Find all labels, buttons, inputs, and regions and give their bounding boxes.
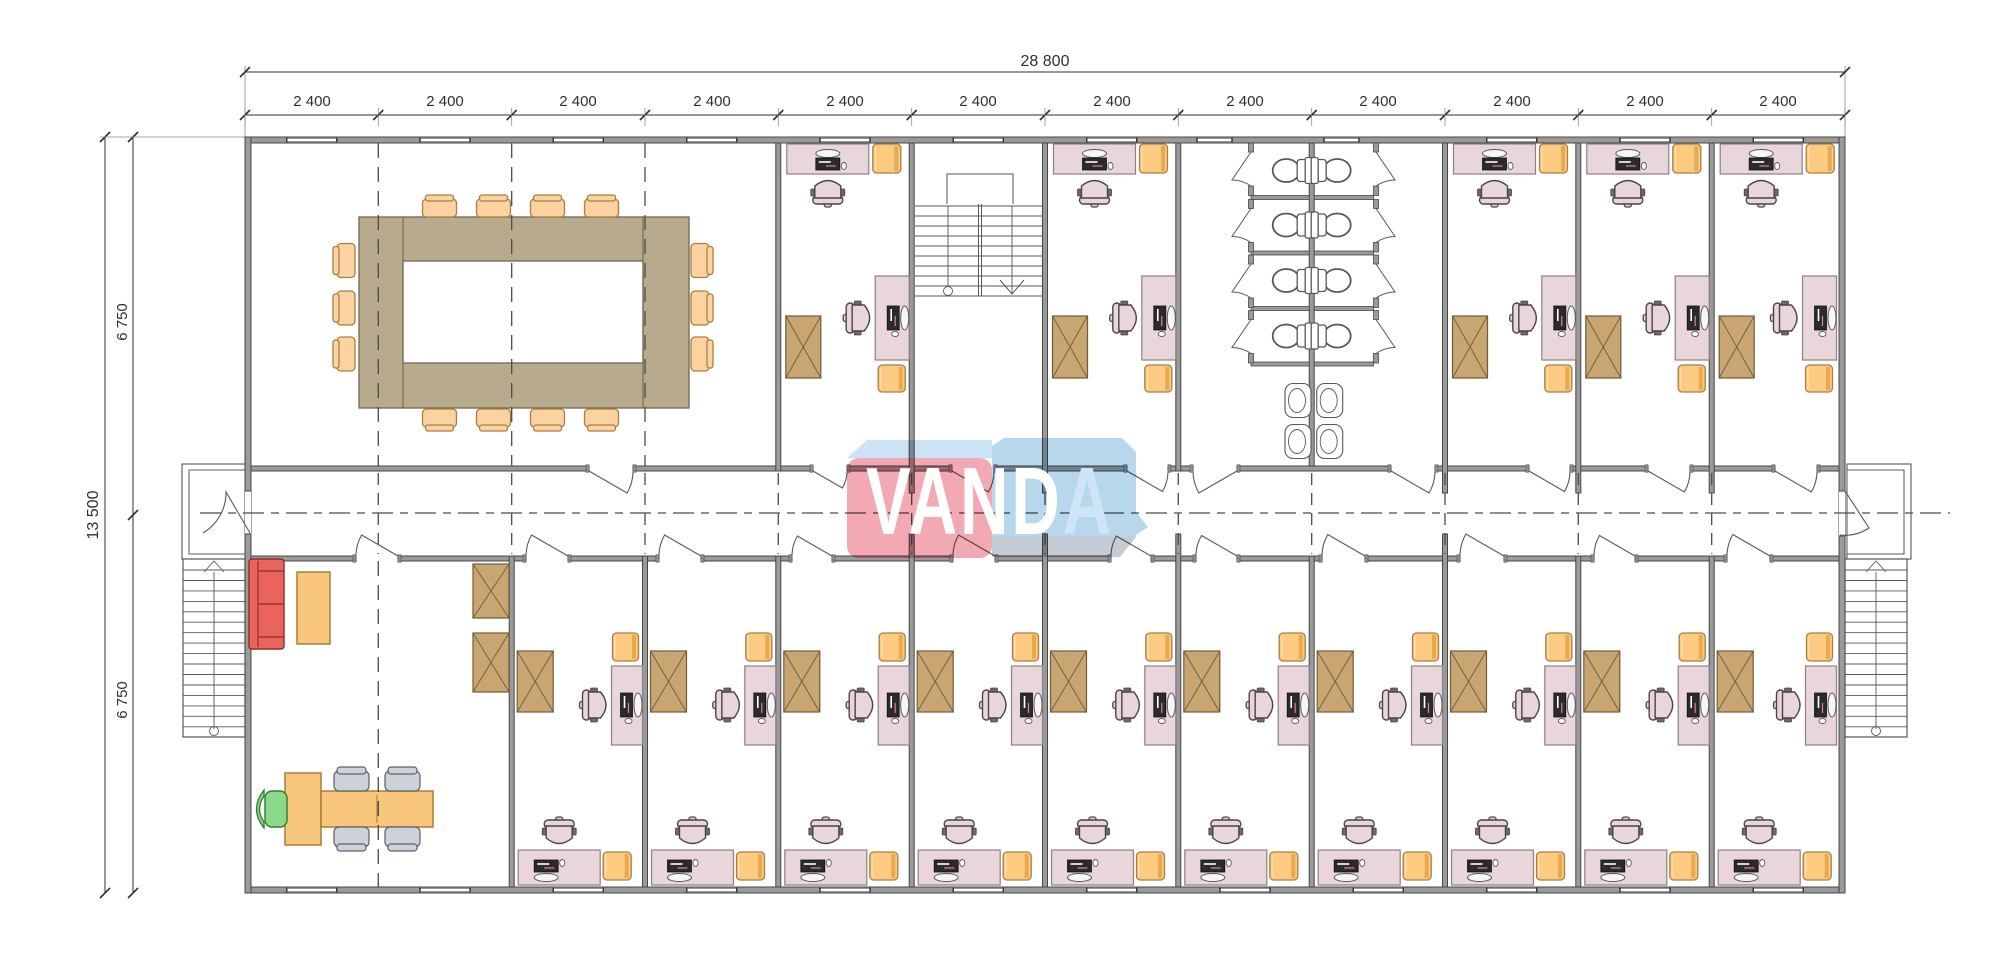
svg-text:2 400: 2 400 <box>559 93 597 110</box>
svg-text:2 400: 2 400 <box>826 93 864 110</box>
svg-text:2 400: 2 400 <box>1093 93 1131 110</box>
svg-text:2 400: 2 400 <box>1359 93 1397 110</box>
svg-text:VANDA: VANDA <box>866 447 1114 555</box>
svg-text:2 400: 2 400 <box>1226 93 1264 110</box>
svg-text:2 400: 2 400 <box>426 93 464 110</box>
svg-text:6 750: 6 750 <box>114 681 131 719</box>
svg-text:2 400: 2 400 <box>693 93 731 110</box>
svg-text:28 800: 28 800 <box>1021 53 1070 70</box>
svg-text:2 400: 2 400 <box>1493 93 1531 110</box>
svg-text:2 400: 2 400 <box>1626 93 1664 110</box>
svg-text:2 400: 2 400 <box>293 93 331 110</box>
svg-text:13 500: 13 500 <box>85 490 102 539</box>
svg-text:2 400: 2 400 <box>959 93 997 110</box>
svg-text:2 400: 2 400 <box>1759 93 1797 110</box>
svg-text:6 750: 6 750 <box>114 303 131 341</box>
